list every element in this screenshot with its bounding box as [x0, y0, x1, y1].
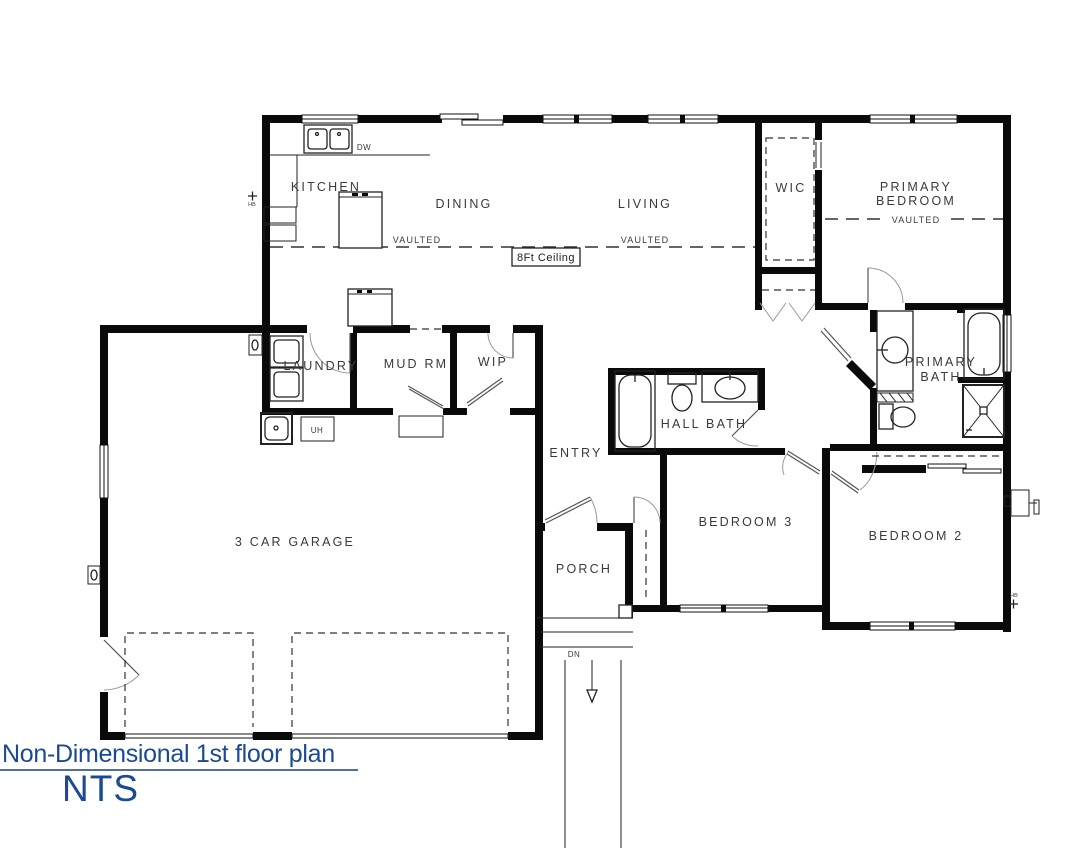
- room-label-garage: 3 CAR GARAGE: [235, 535, 355, 549]
- scale-label: NTS: [62, 768, 139, 809]
- primary-shower: [963, 385, 1004, 437]
- room-label-hall-bath: HALL BATH: [661, 417, 748, 431]
- garage-light-icon: [88, 566, 100, 584]
- primary-bedroom-door: [868, 268, 903, 303]
- windows: [100, 114, 1011, 630]
- room-label-bedroom2: BEDROOM 2: [869, 529, 964, 543]
- primary-toilet: [879, 404, 915, 429]
- dining-slider-door: [440, 114, 503, 125]
- walkway: [565, 660, 621, 848]
- primary-bedroom-window: [870, 115, 957, 123]
- utility-sink: [261, 413, 292, 444]
- entry-closet-door: [634, 497, 660, 523]
- room-label-living: LIVING: [618, 197, 672, 211]
- room-label-wic: WIC: [776, 181, 807, 195]
- sheet-title: Non-Dimensional 1st floor plan: [2, 740, 335, 768]
- room-label-primary-bedroom-1: PRIMARY: [880, 180, 952, 194]
- hall-bath-tub: [615, 371, 655, 451]
- garage-door-2: [292, 633, 508, 727]
- mudroom-garage-door: [399, 386, 444, 437]
- primary-vanity: [877, 311, 913, 391]
- floor-plan-sheet: KITCHEN DINING LIVING WIC PRIMARY BEDROO…: [0, 0, 1066, 853]
- title-block: Non-Dimensional 1st floor plan NTS: [0, 740, 358, 809]
- room-label-dining: DINING: [436, 197, 493, 211]
- hose-bib-left-label: HB: [248, 202, 256, 208]
- doors: [104, 142, 1001, 690]
- kitchen-window: [302, 115, 358, 123]
- primary-bath-angled-door: [821, 328, 851, 361]
- wic-pocket-door: [816, 142, 821, 168]
- hall-bath-toilet: [668, 373, 696, 411]
- hall-bath-vanity: [702, 371, 758, 402]
- room-label-laundry: LAUNDRY: [284, 359, 359, 373]
- porch-post: [619, 605, 632, 618]
- room-label-entry: ENTRY: [549, 446, 602, 460]
- garage-doors: [125, 633, 508, 738]
- unit-heater-label: UH: [311, 426, 324, 435]
- room-label-bedroom3: BEDROOM 3: [699, 515, 794, 529]
- hose-bib-left-icon: [248, 192, 257, 201]
- room-label-mud-rm: MUD RM: [384, 357, 449, 371]
- wic-shelving: [766, 138, 814, 260]
- living-window-2: [648, 115, 718, 123]
- vaulted-label-living: VAULTED: [621, 235, 670, 245]
- room-label-primary-bath-2: BATH: [920, 370, 961, 384]
- room-label-wip: WIP: [478, 355, 508, 369]
- hose-bib-right-label: HB: [1010, 593, 1018, 599]
- front-door: [545, 497, 597, 523]
- doorbell-chime: [249, 335, 262, 355]
- kitchen-island: [339, 192, 382, 248]
- linen-bifold-doors: [760, 303, 815, 321]
- room-label-porch: PORCH: [556, 562, 612, 576]
- garage-door-1: [125, 633, 253, 727]
- wip-angled-door: [467, 378, 503, 406]
- bedroom2-window: [870, 622, 955, 630]
- vaulted-label-primary: VAULTED: [892, 215, 941, 225]
- dishwasher-label: DW: [357, 143, 371, 152]
- down-label: DN: [568, 650, 581, 659]
- garage-window: [100, 445, 108, 498]
- vaulted-label-dining: VAULTED: [393, 235, 442, 245]
- room-label-primary-bedroom-2: BEDROOM: [876, 194, 956, 208]
- bedroom3-window: [680, 605, 768, 612]
- garage-side-door: [104, 640, 139, 690]
- hall-bath-fixtures: [615, 371, 758, 451]
- down-arrow: [587, 660, 597, 702]
- porch-steps: [540, 632, 633, 647]
- kitchen-fixtures: [264, 125, 430, 326]
- bedroom2-closet-sliders: [928, 464, 1001, 473]
- kitchen-sink: [304, 125, 352, 153]
- ceiling-height-label: 8Ft Ceiling: [517, 252, 575, 264]
- range: [348, 289, 392, 326]
- living-window-1: [543, 115, 612, 123]
- porch-and-walkway: [537, 605, 633, 848]
- half-wall-hatch: [877, 393, 913, 402]
- bedroom3-door: [783, 451, 820, 475]
- room-label-primary-bath-1: PRIMARY: [905, 355, 977, 369]
- room-label-kitchen: KITCHEN: [291, 180, 361, 194]
- floor-plan-drawing: KITCHEN DINING LIVING WIC PRIMARY BEDROO…: [0, 0, 1066, 853]
